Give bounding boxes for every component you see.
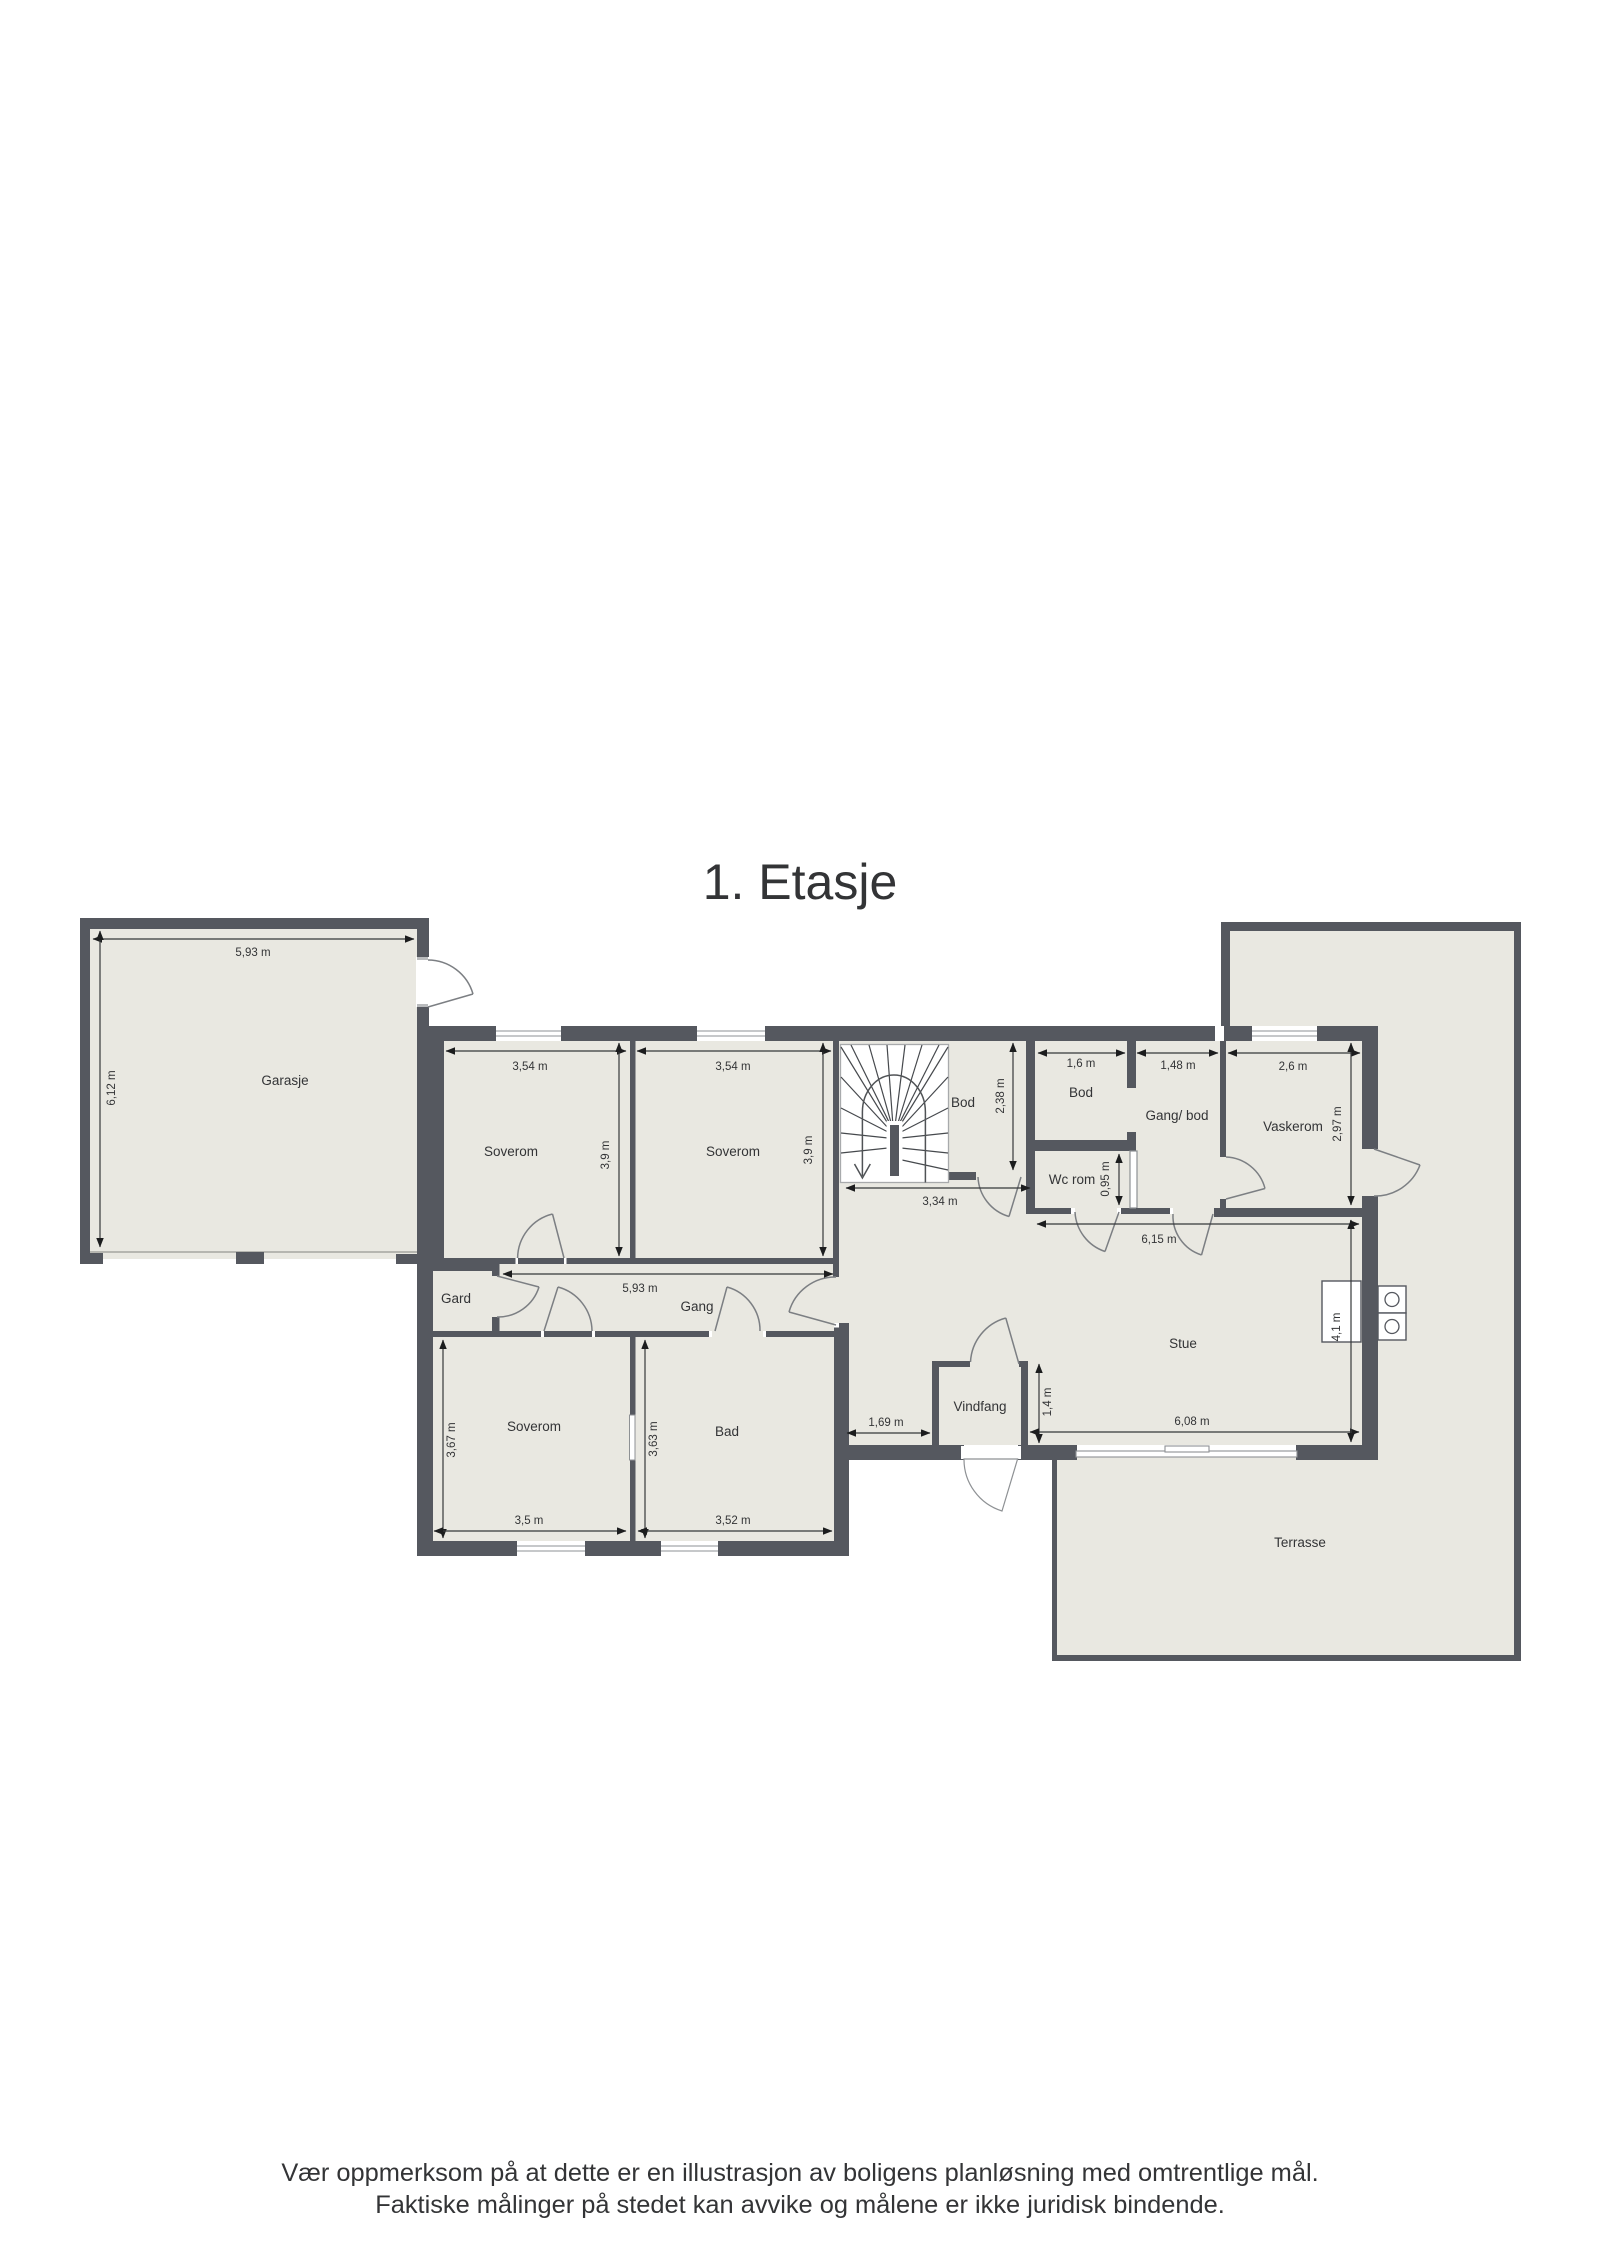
- svg-text:Soverom: Soverom: [507, 1419, 561, 1434]
- svg-text:2,38 m: 2,38 m: [995, 1078, 1007, 1113]
- svg-text:3,9 m: 3,9 m: [803, 1136, 815, 1165]
- svg-text:2,97 m: 2,97 m: [1332, 1106, 1344, 1141]
- svg-text:6,15 m: 6,15 m: [1141, 1234, 1176, 1246]
- svg-text:5,93 m: 5,93 m: [235, 947, 270, 959]
- svg-text:4,1 m: 4,1 m: [1331, 1313, 1343, 1342]
- svg-text:2,6 m: 2,6 m: [1279, 1061, 1308, 1073]
- svg-text:Wc rom: Wc rom: [1049, 1172, 1096, 1187]
- svg-text:3,63 m: 3,63 m: [648, 1421, 660, 1456]
- svg-text:Terrasse: Terrasse: [1274, 1535, 1326, 1550]
- svg-text:1,6 m: 1,6 m: [1067, 1058, 1096, 1070]
- svg-text:1. Etasje: 1. Etasje: [703, 854, 898, 910]
- svg-text:Bod: Bod: [1069, 1085, 1093, 1100]
- svg-text:1,69 m: 1,69 m: [868, 1417, 903, 1429]
- svg-text:3,52 m: 3,52 m: [715, 1515, 750, 1527]
- svg-text:6,12 m: 6,12 m: [106, 1070, 118, 1105]
- svg-text:Vaskerom: Vaskerom: [1263, 1119, 1323, 1134]
- svg-text:5,93 m: 5,93 m: [622, 1283, 657, 1295]
- svg-text:1,48 m: 1,48 m: [1160, 1060, 1195, 1072]
- svg-text:Stue: Stue: [1169, 1336, 1197, 1351]
- svg-text:1,4 m: 1,4 m: [1042, 1388, 1054, 1417]
- svg-text:3,67 m: 3,67 m: [446, 1422, 458, 1457]
- svg-text:Bod: Bod: [951, 1095, 975, 1110]
- svg-text:3,5 m: 3,5 m: [515, 1515, 544, 1527]
- svg-text:6,08 m: 6,08 m: [1174, 1416, 1209, 1428]
- svg-text:0,95 m: 0,95 m: [1100, 1161, 1112, 1196]
- svg-text:Garasje: Garasje: [261, 1073, 308, 1088]
- svg-text:Gang: Gang: [680, 1299, 713, 1314]
- svg-text:Gard: Gard: [441, 1291, 471, 1306]
- svg-text:Soverom: Soverom: [706, 1144, 760, 1159]
- svg-text:Vær oppmerksom på at dette er: Vær oppmerksom på at dette er en illustr…: [281, 2159, 1318, 2187]
- svg-text:Soverom: Soverom: [484, 1144, 538, 1159]
- svg-text:Vindfang: Vindfang: [953, 1399, 1006, 1414]
- svg-text:3,9 m: 3,9 m: [600, 1141, 612, 1170]
- svg-text:3,54 m: 3,54 m: [715, 1061, 750, 1073]
- svg-text:Faktiske målinger på stedet ka: Faktiske målinger på stedet kan avvike o…: [375, 2191, 1225, 2219]
- svg-text:Bad: Bad: [715, 1424, 739, 1439]
- svg-text:Gang/ bod: Gang/ bod: [1145, 1108, 1208, 1123]
- svg-text:3,54 m: 3,54 m: [512, 1061, 547, 1073]
- svg-text:3,34 m: 3,34 m: [922, 1196, 957, 1208]
